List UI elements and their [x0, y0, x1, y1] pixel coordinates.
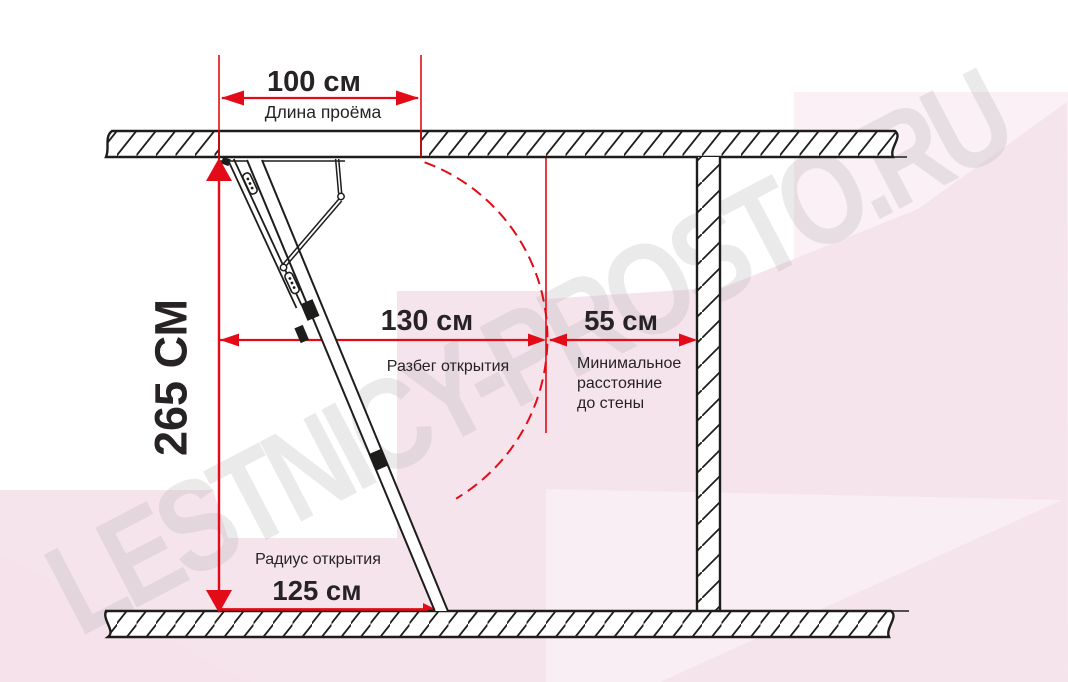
svg-text:55 см: 55 см — [584, 305, 658, 336]
svg-text:Радиус открытия: Радиус открытия — [255, 551, 381, 568]
svg-text:до стены: до стены — [577, 395, 644, 412]
svg-text:расстояние: расстояние — [577, 375, 662, 392]
svg-text:100 см: 100 см — [267, 66, 361, 98]
svg-text:125 см: 125 см — [272, 575, 361, 606]
svg-text:130 см: 130 см — [381, 305, 473, 337]
svg-text:Длина проёма: Длина проёма — [265, 102, 382, 122]
svg-text:Минимальное: Минимальное — [577, 355, 681, 372]
svg-text:Разбег открытия: Разбег открытия — [387, 358, 509, 375]
svg-text:265 СМ: 265 СМ — [146, 299, 197, 456]
